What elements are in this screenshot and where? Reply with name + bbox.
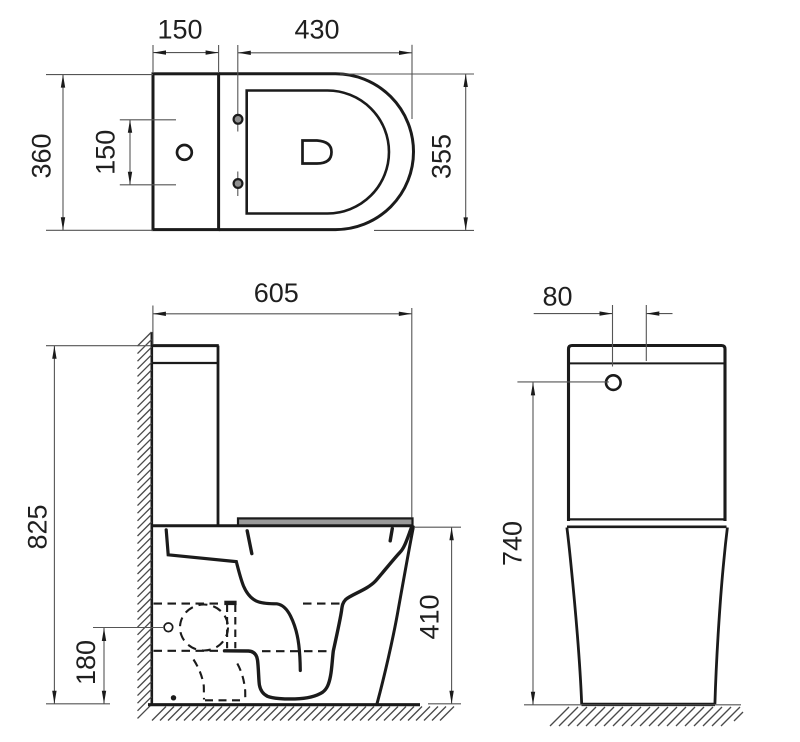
svg-text:180: 180 — [71, 640, 101, 685]
svg-text:150: 150 — [157, 15, 202, 45]
svg-text:355: 355 — [427, 134, 457, 179]
svg-text:410: 410 — [415, 594, 445, 639]
svg-text:150: 150 — [91, 130, 121, 175]
svg-text:605: 605 — [254, 278, 299, 308]
svg-text:430: 430 — [294, 15, 339, 45]
svg-text:80: 80 — [542, 282, 572, 312]
svg-text:825: 825 — [23, 504, 53, 549]
svg-text:360: 360 — [27, 133, 57, 178]
svg-text:740: 740 — [498, 521, 528, 566]
